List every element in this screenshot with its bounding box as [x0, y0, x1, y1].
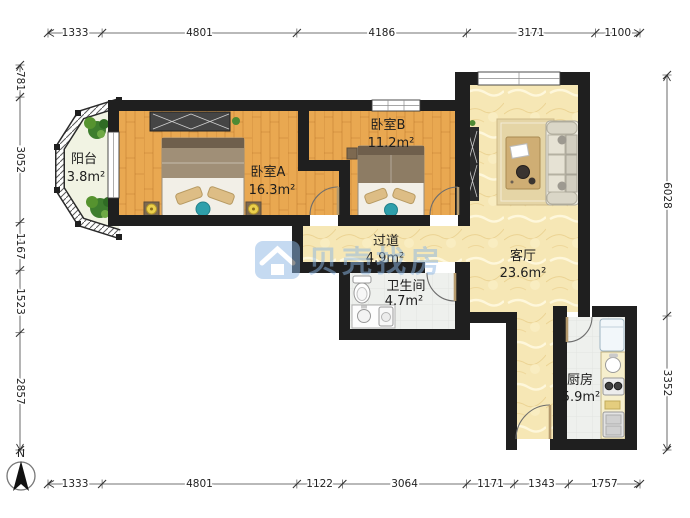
kitchen-fixtures: [600, 319, 625, 439]
table-dot: [511, 181, 514, 184]
toilet-seat: [357, 288, 367, 301]
dim-label-top-2: 4186: [368, 27, 395, 39]
lamp-left-dot: [150, 208, 153, 211]
wall: [339, 171, 350, 215]
wall: [506, 312, 517, 450]
bath-sink: [358, 310, 371, 323]
bed-a-headboard: [162, 138, 244, 148]
room-label-kitchen: 厨房: [567, 372, 593, 388]
wall: [298, 160, 350, 171]
dim-label-top-0: 1333: [62, 27, 89, 39]
room-label-bedroom-a: 卧室A: [251, 164, 286, 180]
sofa-armrest-bottom: [547, 192, 577, 204]
wall: [108, 215, 310, 226]
window-living-room: [478, 72, 560, 85]
wall: [108, 111, 119, 132]
dim-label-bottom-5: 1343: [528, 478, 555, 490]
wall: [338, 215, 430, 226]
dim-label-top-1: 4801: [186, 27, 213, 39]
room-area-kitchen: 5.9m²: [562, 390, 601, 405]
sofa-armrest-top: [547, 122, 577, 134]
wall: [339, 329, 470, 340]
floor-plan-canvas: 阳台 3.8m² 卧室A 16.3m² 卧室B 11.2m² 过道 4.9m² …: [0, 0, 690, 518]
sofa-back-3: [566, 175, 577, 192]
kitchen-faucet: [609, 354, 618, 358]
sofa-back-2: [566, 155, 577, 174]
bed-a-ottoman: [196, 202, 210, 216]
room-area-bathroom: 4.7m²: [385, 294, 424, 309]
watermark: 贝壳找房: [255, 241, 444, 280]
room-area-living: 23.6m²: [500, 266, 547, 281]
drawer-2: [606, 426, 621, 435]
dim-label-bottom-3: 3064: [391, 478, 418, 490]
kitchen-sink: [606, 358, 621, 373]
sofa-seat-2: [548, 155, 565, 174]
floor-plan-page: 阳台 3.8m² 卧室A 16.3m² 卧室B 11.2m² 过道 4.9m² …: [0, 0, 690, 518]
room-label-bedroom-b: 卧室B: [371, 117, 406, 133]
room-area-bedroom-b: 11.2m²: [368, 136, 415, 151]
watermark-text: 贝壳找房: [308, 245, 444, 280]
wall: [506, 439, 517, 450]
dim-label-left-0: 781: [14, 71, 26, 91]
wall: [298, 111, 309, 160]
window-bedroom-b: [372, 100, 420, 111]
dim-label-left-4: 2857: [14, 378, 26, 405]
room-label-bathroom: 卫生间: [386, 279, 425, 294]
dim-label-left-1: 3052: [14, 146, 26, 173]
dim-label-top-4: 1100: [604, 27, 631, 39]
bedroom-b-furniture: [347, 146, 424, 218]
washing-machine-drum: [382, 313, 391, 322]
dim-label-right-1: 3352: [661, 370, 673, 397]
bed-b-ottoman: [385, 204, 398, 217]
wall: [458, 215, 470, 226]
fridge: [600, 319, 624, 351]
nightstand-b: [347, 148, 357, 159]
burner-right: [614, 382, 622, 390]
sofa-back-1: [566, 135, 577, 154]
dim-label-bottom-0: 1333: [62, 478, 89, 490]
bath-faucet: [361, 306, 367, 309]
dim-label-bottom-2: 1122: [306, 478, 333, 490]
wall: [455, 72, 478, 85]
dim-label-bottom-1: 4801: [186, 478, 213, 490]
table-kettle: [517, 166, 530, 179]
window-balcony-bedroom-a: [108, 132, 119, 198]
room-area-balcony: 3.8m²: [67, 170, 106, 185]
dim-label-right-0: 6028: [661, 182, 673, 209]
burner-left: [605, 382, 613, 390]
lamp-right-dot: [252, 208, 255, 211]
room-label-living: 客厅: [510, 248, 536, 264]
table-cup: [529, 178, 536, 185]
room-area-bedroom-a: 16.3m²: [249, 183, 296, 198]
kitchen-mat: [605, 401, 620, 409]
drawer-1: [606, 415, 621, 424]
wall: [625, 306, 637, 450]
dim-label-bottom-6: 1757: [591, 478, 618, 490]
wardrobe: [150, 112, 230, 131]
table-paper: [510, 144, 529, 159]
dim-label-top-3: 3171: [518, 27, 545, 39]
watermark-door-icon: [271, 264, 284, 275]
dim-label-bottom-4: 1171: [477, 478, 504, 490]
wall: [455, 262, 470, 340]
wall: [108, 100, 372, 111]
dim-label-left-3: 1523: [14, 288, 26, 315]
wall: [578, 72, 590, 317]
dim-label-left-2: 1167: [14, 233, 26, 260]
wall: [553, 306, 567, 450]
room-label-balcony: 阳台: [71, 152, 97, 167]
plant-icon: [232, 117, 240, 125]
tv-plant-icon: [470, 120, 476, 126]
sofa-pillow-bottom: [558, 182, 567, 191]
sofa-pillow-top: [558, 136, 567, 145]
